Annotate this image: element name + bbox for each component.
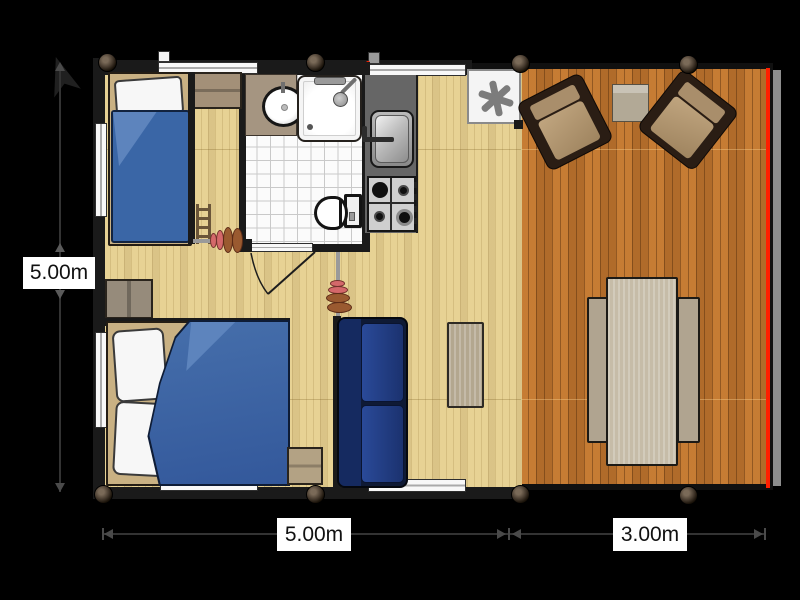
dim-label-width-main: 5.00m (277, 518, 351, 551)
stove-grid-h (369, 202, 414, 204)
curtain-coil (232, 228, 243, 253)
stove-burner (396, 209, 413, 226)
dim-arrow-down (55, 483, 65, 492)
window-left-upper (95, 123, 107, 217)
toilet-flush-button (349, 212, 355, 221)
support-bolt (511, 485, 530, 504)
picnic-table-top (606, 277, 678, 466)
dim-height-text: 5.00m (30, 261, 88, 285)
duvet-fill (148, 322, 288, 484)
stove-burner (372, 182, 388, 198)
support-bolt (94, 485, 113, 504)
floor-plan: 5.00m 5.00m 3.00m (0, 0, 800, 600)
coffee-table (447, 322, 484, 408)
blanket-fold (113, 112, 188, 241)
bedroom1-wardrobe (192, 72, 242, 109)
sofa-backrest (339, 319, 361, 486)
ladder-rung (196, 208, 211, 211)
ladder-rung (196, 217, 211, 220)
washbasin-drain (281, 104, 288, 111)
shower-drain (307, 124, 313, 130)
support-bolt (306, 485, 325, 504)
north-arrow-icon (42, 54, 82, 98)
boiler-foot (514, 120, 523, 129)
deck-outer-strip (773, 70, 781, 486)
bathroom-door-swing-arc (243, 244, 329, 302)
window-tab (158, 51, 170, 62)
dim-arrow-left (104, 529, 113, 539)
stove-knob (414, 182, 417, 188)
dim-label-width-deck: 3.00m (613, 518, 687, 551)
shower-head-icon (333, 92, 348, 107)
sofa (337, 317, 408, 488)
dim-arrow-right (754, 529, 763, 539)
bedroom1-wall-right (188, 72, 195, 244)
deck-bottom-edge (520, 484, 773, 490)
support-bolt (679, 486, 698, 505)
stove-grid-v (390, 178, 392, 230)
sofa-seat-cushion (361, 405, 404, 483)
wall-stub (242, 239, 252, 252)
support-bolt (679, 55, 698, 74)
support-bolt (511, 54, 530, 73)
dim-stop-bar (508, 528, 510, 540)
support-bolt (306, 53, 325, 72)
toilet-bowl (314, 196, 348, 230)
bedroom2-wardrobe (105, 279, 153, 319)
ladder-rung (196, 226, 211, 229)
sofa-seat-cushion (361, 323, 404, 402)
stove-knob (414, 206, 417, 212)
stove-burner (398, 185, 409, 196)
dim-width-deck-text: 3.00m (621, 523, 679, 547)
dim-arrow-left (512, 529, 521, 539)
stove-knob (414, 194, 417, 200)
shower-handle-icon (314, 77, 346, 85)
dim-label-height: 5.00m (23, 257, 95, 289)
kitchen-faucet-spout (364, 137, 394, 142)
ladder-rung (196, 235, 211, 238)
curtain-coil (327, 302, 352, 313)
picnic-bench (677, 297, 700, 443)
dim-arrow-up (55, 243, 65, 252)
dim-stop-bar (764, 528, 766, 540)
dim-arrow-right (497, 529, 506, 539)
stove-knob (414, 218, 417, 224)
bedroom2-cabinet (287, 447, 323, 485)
support-bolt (98, 53, 117, 72)
dim-arrow-down (55, 290, 65, 299)
boiler-unit (467, 69, 521, 124)
toilet-seat-line (339, 199, 342, 227)
stove-burner (374, 211, 385, 222)
bedroom2-duvet (146, 320, 290, 486)
dim-arrow-up (55, 62, 65, 71)
washbasin-tap-icon (281, 82, 285, 93)
bedroom1-blanket (111, 110, 190, 243)
dim-width-main-text: 5.00m (285, 523, 343, 547)
